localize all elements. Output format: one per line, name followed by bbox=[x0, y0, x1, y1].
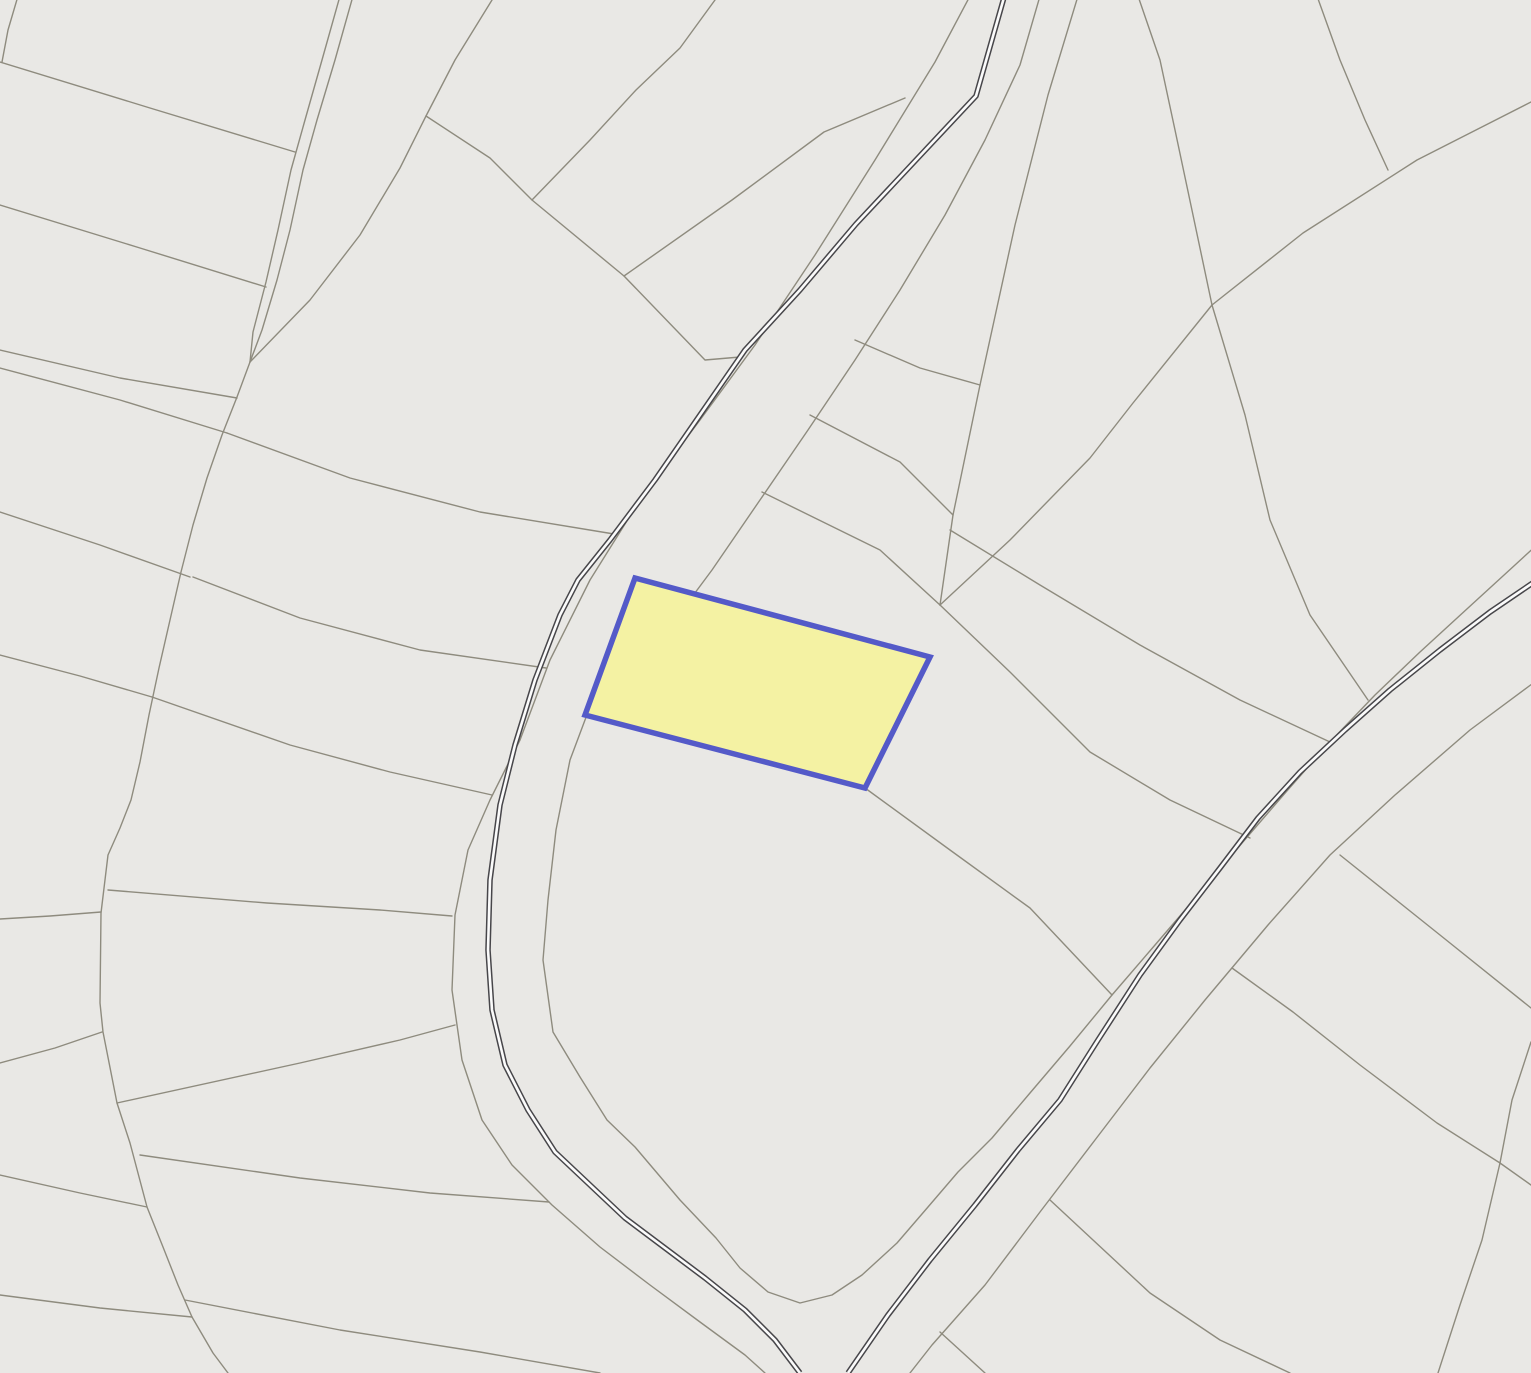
east-diagonal-road-casing bbox=[848, 578, 1531, 1373]
parcel-map-viewport[interactable] bbox=[0, 0, 1531, 1373]
mid-fan-line-4 bbox=[0, 912, 101, 919]
top-fan-line-2 bbox=[624, 98, 905, 276]
tl-fan-line-3 bbox=[0, 350, 237, 398]
sw-fan-line-4 bbox=[185, 1300, 600, 1373]
tl-fan-line-2 bbox=[0, 205, 266, 287]
tl-corner-stub bbox=[2, 0, 18, 62]
steep-boundary-outer bbox=[250, 0, 353, 362]
rear-lot-boundary bbox=[940, 0, 1078, 605]
parcel-map-canvas[interactable] bbox=[0, 0, 1531, 1373]
se-rear-boundary bbox=[1438, 1042, 1531, 1373]
ne-side-line-1 bbox=[1138, 0, 1212, 305]
central-fan-line-1 bbox=[227, 433, 614, 534]
se-side-line-3 bbox=[1050, 1200, 1290, 1373]
row-line-north-1 bbox=[762, 492, 940, 605]
selected-parcel[interactable] bbox=[585, 578, 930, 788]
central-fan-line-3 bbox=[152, 697, 492, 795]
mid-fan-line-5 bbox=[0, 1032, 102, 1063]
mid-fan-line-1 bbox=[0, 368, 227, 433]
vertex-to-top-boundary bbox=[250, 0, 492, 362]
ll-edge-line-1 bbox=[0, 1175, 147, 1207]
east-diagonal-road-centerline bbox=[848, 578, 1531, 1373]
row-line-east-1 bbox=[940, 605, 1250, 838]
row-line-east-2 bbox=[865, 788, 1112, 995]
east-road-frontage-line bbox=[910, 678, 1531, 1373]
ne-side-line-3 bbox=[1212, 305, 1368, 700]
central-fan-line-2 bbox=[193, 577, 546, 668]
wedge-divider bbox=[426, 116, 740, 360]
sw-fan-line-1 bbox=[108, 890, 452, 916]
top-fan-line-1 bbox=[532, 0, 715, 200]
mid-fan-line-2 bbox=[0, 512, 190, 577]
ne-midblock-boundary bbox=[940, 102, 1531, 605]
se-side-line-1 bbox=[1340, 855, 1531, 1008]
mid-fan-line-3 bbox=[0, 655, 152, 697]
west-block-arc bbox=[100, 362, 250, 1373]
row-line-north-3 bbox=[855, 340, 980, 385]
sw-fan-line-3 bbox=[140, 1155, 549, 1202]
sw-fan-line-2 bbox=[117, 1025, 455, 1103]
ll-edge-line-2 bbox=[0, 1295, 192, 1317]
steep-boundary-inner bbox=[250, 0, 340, 362]
se-side-line-4 bbox=[940, 1332, 985, 1373]
row-line-east-3 bbox=[950, 530, 1330, 742]
se-side-line-2 bbox=[1232, 968, 1531, 1185]
row-line-north-2 bbox=[810, 415, 953, 515]
tl-fan-line-1 bbox=[0, 62, 295, 152]
ne-side-line-2 bbox=[1317, 0, 1388, 170]
